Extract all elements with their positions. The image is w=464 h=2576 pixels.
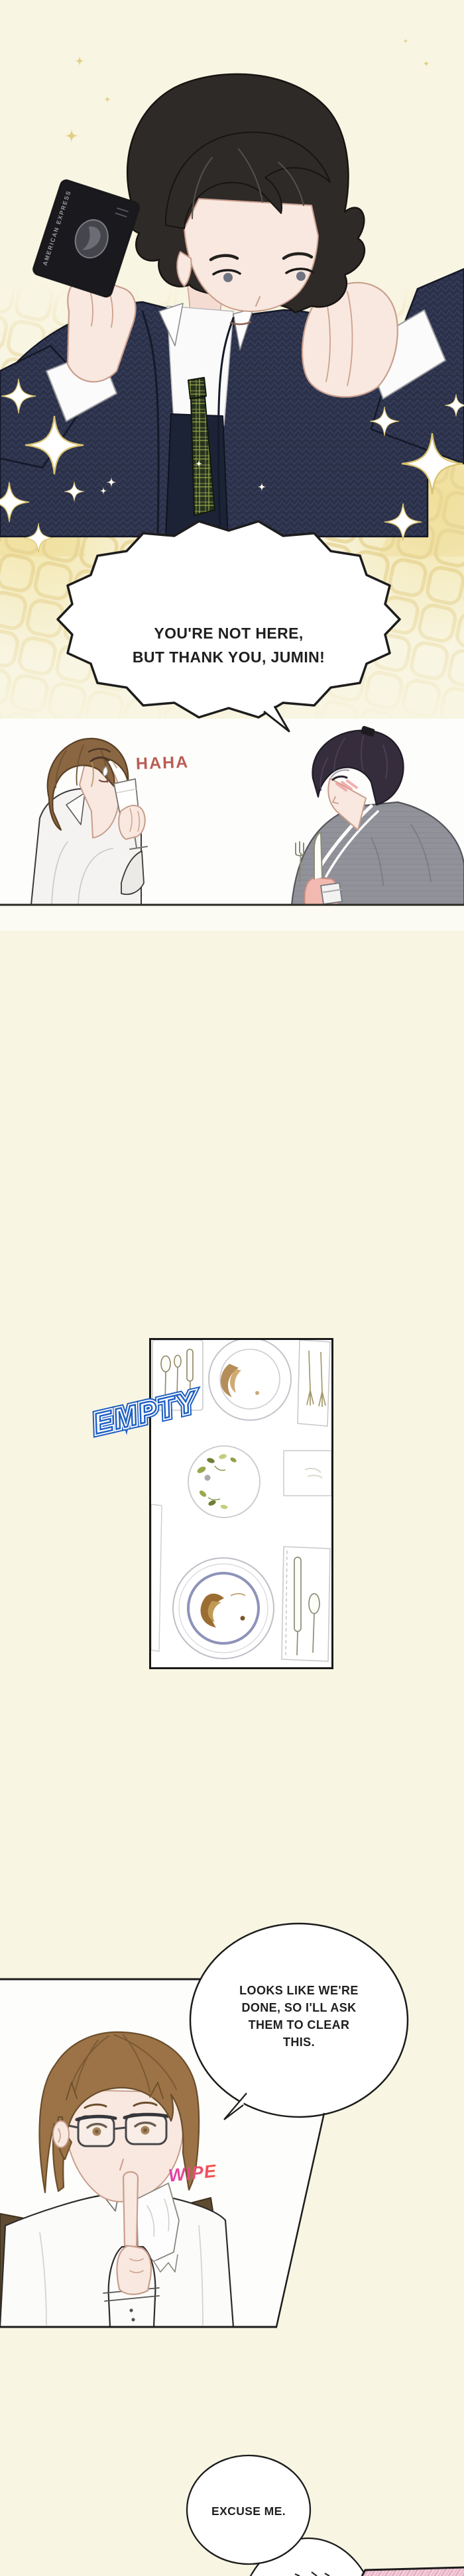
ear [53,2121,69,2147]
dinner-panel [0,719,464,931]
napkin-bottom-right [282,1547,330,1661]
table-panel [149,1338,333,1669]
eye-right [296,272,306,281]
cuff-button [129,2308,133,2312]
sfx-haha: HAHA [136,753,190,774]
bubble-clear-text: LOOKS LIKE WE'RE DONE, SO I'LL ASK THEM … [225,1982,373,2051]
index-finger [123,2172,138,2247]
cuff-button [131,2318,135,2321]
fist [117,2245,150,2294]
tie-knot [188,378,206,399]
wipe-panel [0,1914,464,2328]
napkin-top-right [298,1340,330,1426]
bubble-excuse-text: EXCUSE ME. [196,2502,302,2520]
napkin-bottom-left [151,1504,162,1651]
cloud-bubble-shape [58,521,400,717]
amex-card: AMERICAN EXPRESS [32,179,141,299]
napkin-mid-right [284,1451,331,1496]
eye-left [223,273,233,282]
bubble-thanks-text: YOU'RE NOT HERE, BUT THANK YOU, JUMIN! [99,621,358,669]
knife [314,833,322,879]
plate-bottom [173,1558,274,1659]
plate-blue-rim [188,1573,259,1643]
plate-middle [188,1446,260,1518]
webtoon-page: AMERICAN EXPRESS [0,0,464,2576]
cuff [321,883,342,904]
garnish-pebble [205,1475,211,1481]
